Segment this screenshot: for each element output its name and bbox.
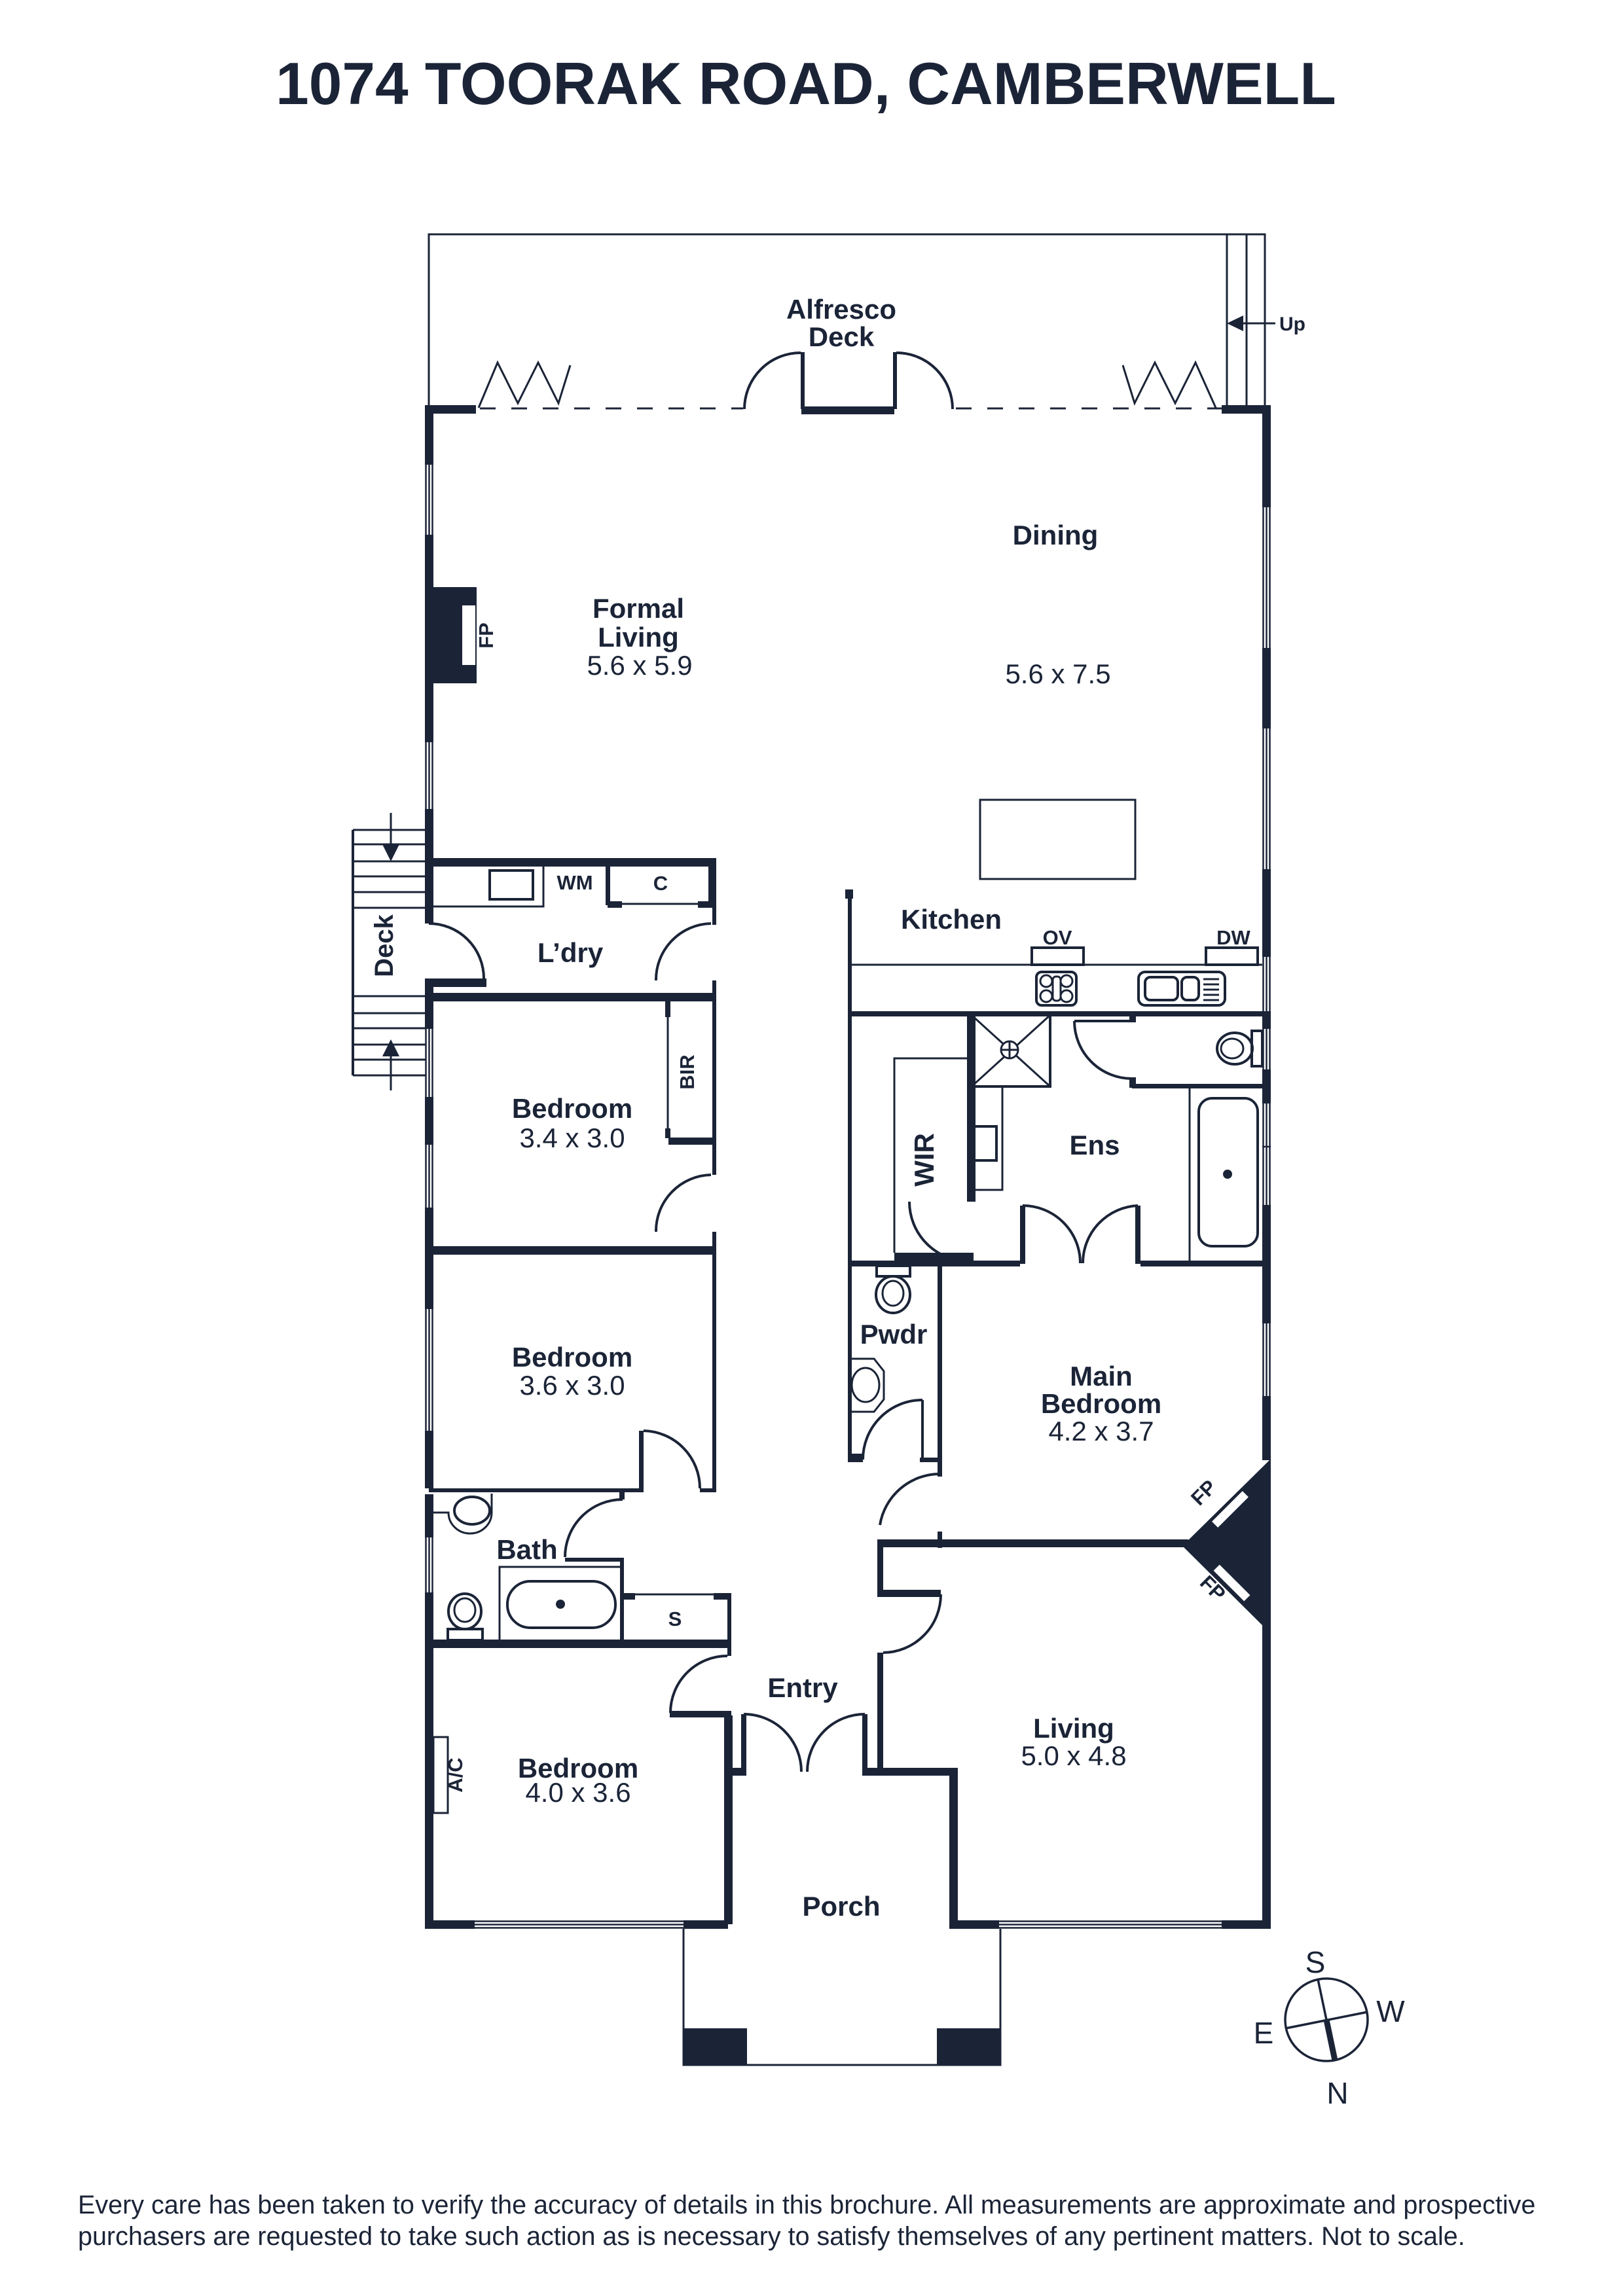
svg-text:Main: Main: [1070, 1361, 1133, 1391]
svg-text:L’dry: L’dry: [538, 937, 604, 968]
svg-text:A/C: A/C: [444, 1757, 467, 1792]
svg-text:Deck: Deck: [809, 321, 875, 352]
svg-text:C: C: [653, 872, 668, 895]
svg-text:S: S: [668, 1607, 682, 1630]
svg-text:3.6 x 3.0: 3.6 x 3.0: [519, 1370, 625, 1401]
svg-text:FP: FP: [475, 622, 498, 649]
svg-text:4.0 x 3.6: 4.0 x 3.6: [525, 1777, 630, 1808]
svg-text:S: S: [1305, 1945, 1326, 1979]
svg-text:Living: Living: [598, 622, 679, 653]
svg-text:WIR: WIR: [909, 1133, 939, 1187]
svg-text:4.2 x 3.7: 4.2 x 3.7: [1048, 1416, 1154, 1446]
svg-text:W: W: [1376, 1994, 1405, 2028]
svg-text:BIR: BIR: [676, 1054, 699, 1089]
svg-text:5.6 x 5.9: 5.6 x 5.9: [587, 650, 692, 681]
svg-text:Pwdr: Pwdr: [860, 1319, 928, 1350]
svg-text:Alfresco: Alfresco: [786, 294, 896, 325]
svg-text:3.4 x 3.0: 3.4 x 3.0: [519, 1122, 625, 1153]
svg-text:Entry: Entry: [767, 1672, 838, 1703]
svg-text:Bedroom: Bedroom: [1041, 1388, 1161, 1419]
svg-text:Ens: Ens: [1069, 1130, 1120, 1160]
svg-text:Bedroom: Bedroom: [512, 1342, 632, 1372]
svg-text:N: N: [1326, 2076, 1348, 2110]
svg-text:5.6 x 7.5: 5.6 x 7.5: [1005, 658, 1110, 689]
svg-text:purchasers are requested to ta: purchasers are requested to take such ac…: [78, 2222, 1465, 2251]
svg-text:Porch: Porch: [802, 1891, 880, 1922]
svg-text:Dining: Dining: [1013, 520, 1099, 550]
svg-text:E: E: [1254, 2016, 1274, 2050]
svg-text:Up: Up: [1279, 314, 1305, 335]
svg-text:Formal: Formal: [593, 593, 684, 624]
svg-text:Every care has been taken to v: Every care has been taken to verify the …: [78, 2191, 1535, 2219]
svg-text:DW: DW: [1216, 926, 1250, 949]
svg-text:Bedroom: Bedroom: [512, 1093, 632, 1124]
svg-text:Kitchen: Kitchen: [901, 904, 1002, 935]
svg-text:WM: WM: [556, 871, 593, 894]
svg-text:Bath: Bath: [496, 1534, 557, 1565]
svg-text:Living: Living: [1033, 1713, 1114, 1744]
svg-text:1074 TOORAK ROAD, CAMBERWELL: 1074 TOORAK ROAD, CAMBERWELL: [276, 51, 1336, 117]
svg-text:Deck: Deck: [370, 914, 399, 977]
svg-text:OV: OV: [1043, 926, 1072, 949]
svg-text:5.0 x 4.8: 5.0 x 4.8: [1021, 1740, 1126, 1771]
